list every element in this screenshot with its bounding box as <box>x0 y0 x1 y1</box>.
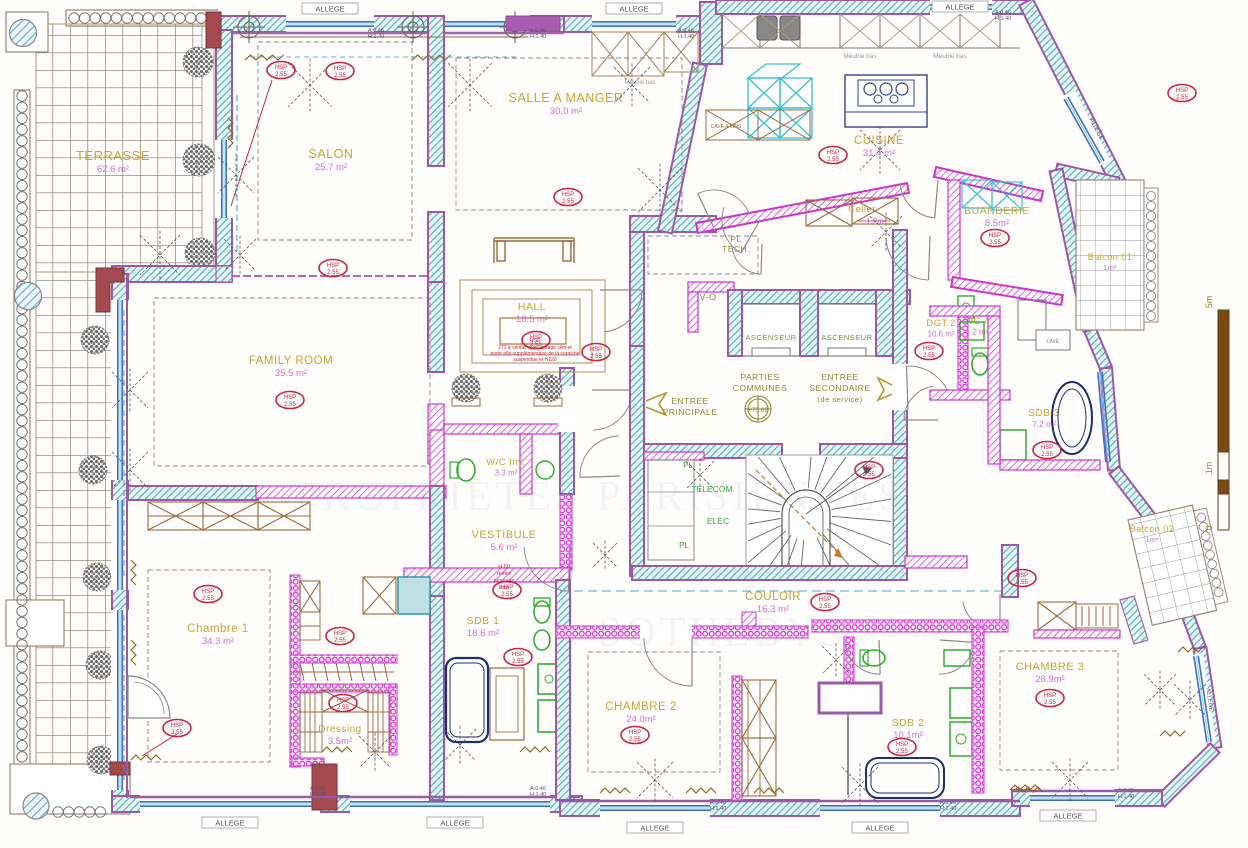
svg-text:2.55: 2.55 <box>827 157 839 163</box>
svg-text:SDB 3: SDB 3 <box>1028 408 1059 419</box>
svg-text:2.55: 2.55 <box>334 73 346 79</box>
svg-text:2.55: 2.55 <box>202 596 214 602</box>
svg-text:Balcon 02: Balcon 02 <box>1130 524 1175 534</box>
svg-text:HSP: HSP <box>590 347 602 353</box>
svg-text:HSP: HSP <box>501 585 513 591</box>
svg-text:35.5 m²: 35.5 m² <box>275 368 307 379</box>
svg-text:W/C Inv.: W/C Inv. <box>486 457 526 468</box>
svg-text:HSP: HSP <box>896 742 908 748</box>
svg-text:COULOIR: COULOIR <box>745 591 801 603</box>
svg-text:ENTREE: ENTREE <box>821 372 858 382</box>
svg-text:0: 0 <box>1204 525 1214 530</box>
svg-text:ASCENSEUR: ASCENSEUR <box>821 333 872 342</box>
svg-text:BUANDERIE: BUANDERIE <box>964 205 1030 217</box>
svg-text:CHAMBRE 3: CHAMBRE 3 <box>1016 661 1085 673</box>
svg-text:(de service): (de service) <box>817 395 862 404</box>
svg-text:H.60: H.60 <box>498 564 510 570</box>
svg-text:ALLEGE: ALLEGE <box>315 5 344 14</box>
svg-text:LAVE: LAVE <box>1047 339 1060 345</box>
svg-text:mètre: mètre <box>497 571 511 577</box>
svg-text:ENTREE: ENTREE <box>671 396 708 406</box>
svg-text:TERRASSE: TERRASSE <box>76 148 150 163</box>
svg-text:ALLEGE: ALLEGE <box>640 824 669 833</box>
svg-text:CUISINE: CUISINE <box>854 135 904 147</box>
svg-text:31.4 m²: 31.4 m² <box>863 148 895 159</box>
svg-text:A:0.46H:1.40: A:0.46H:1.40 <box>995 10 1011 22</box>
svg-text:ALLEGE: ALLEGE <box>619 5 648 14</box>
svg-text:2.55: 2.55 <box>896 749 908 755</box>
svg-text:2.55: 2.55 <box>590 354 602 360</box>
svg-text:HSP: HSP <box>530 335 542 341</box>
svg-text:2.55: 2.55 <box>512 659 524 665</box>
svg-text:HSP: HSP <box>1044 693 1056 699</box>
svg-text:SDB 1: SDB 1 <box>467 615 500 627</box>
svg-text:5.6 m²: 5.6 m² <box>491 542 518 553</box>
svg-text:2.55: 2.55 <box>530 342 542 348</box>
svg-text:3.5m²: 3.5m² <box>328 736 352 747</box>
svg-text:VESTIBULE: VESTIBULE <box>471 529 536 541</box>
svg-text:2.55: 2.55 <box>629 737 641 743</box>
svg-text:1m²: 1m² <box>1146 535 1159 544</box>
svg-text:25.7 m²: 25.7 m² <box>315 162 347 173</box>
svg-text:1.2 m²: 1.2 m² <box>966 328 989 337</box>
svg-text:5m: 5m <box>1204 296 1214 309</box>
svg-text:PL: PL <box>683 461 693 470</box>
svg-text:HSP: HSP <box>327 263 339 269</box>
svg-text:2.55: 2.55 <box>501 592 513 598</box>
svg-text:2.55: 2.55 <box>1041 452 1053 458</box>
svg-text:PROPRIETES PARISIENNES: PROPRIETES PARISIENNES <box>295 474 905 520</box>
svg-text:2.55: 2.55 <box>1176 95 1188 101</box>
svg-text:8.5m²: 8.5m² <box>985 218 1009 229</box>
svg-text:34.3 m²: 34.3 m² <box>202 636 234 647</box>
svg-text:SALLE A MANGER: SALLE A MANGER <box>509 91 624 105</box>
svg-text:A:0.46H:1.40: A:0.46H:1.40 <box>530 28 546 40</box>
svg-text:HSP: HSP <box>334 66 346 72</box>
svg-text:HSP: HSP <box>629 730 641 736</box>
svg-text:suspendue et H220: suspendue et H220 <box>513 357 557 363</box>
svg-text:A:0.46H:1.40: A:0.46H:1.40 <box>368 28 384 40</box>
svg-text:HSP: HSP <box>275 65 287 71</box>
svg-text:Dressing: Dressing <box>318 724 361 735</box>
svg-text:ALLEGE: ALLEGE <box>865 824 894 833</box>
svg-text:SOTHEBYS: SOTHEBYS <box>598 610 847 656</box>
svg-text:HSP: HSP <box>512 652 524 658</box>
svg-text:Chambre 1: Chambre 1 <box>187 623 248 635</box>
svg-text:A:0.46H:1.40: A:0.46H:1.40 <box>678 28 694 40</box>
svg-text:1m: 1m <box>1204 462 1214 475</box>
svg-text:Celier: Celier <box>848 204 876 215</box>
svg-text:HSP: HSP <box>863 465 875 471</box>
svg-text:COMMUNES: COMMUNES <box>733 383 788 393</box>
svg-text:HALL: HALL <box>518 301 546 313</box>
svg-text:HSP: HSP <box>337 698 349 704</box>
svg-text:30.0 m²: 30.0 m² <box>550 106 582 117</box>
svg-text:SDB 2: SDB 2 <box>892 717 925 729</box>
svg-text:HSP: HSP <box>923 346 935 352</box>
svg-text:HSP: HSP <box>284 395 296 401</box>
svg-text:10.6 m²: 10.6 m² <box>927 330 954 339</box>
svg-text:CHAMBRE 2: CHAMBRE 2 <box>605 701 677 713</box>
svg-text:24.0m²: 24.0m² <box>626 714 656 725</box>
svg-text:PARTIES: PARTIES <box>740 372 779 382</box>
svg-text:2.55: 2.55 <box>923 353 935 359</box>
svg-text:ALLEGE: ALLEGE <box>215 819 244 828</box>
svg-text:1m²: 1m² <box>1104 263 1117 272</box>
svg-text:2.55: 2.55 <box>327 270 339 276</box>
svg-text:+75.62: +75.62 <box>748 407 768 414</box>
svg-text:Meuble bas: Meuble bas <box>933 53 967 60</box>
svg-text:18.5 m²: 18.5 m² <box>516 314 548 325</box>
svg-text:DGT.2: DGT.2 <box>926 318 955 329</box>
svg-text:V-O: V-O <box>699 292 716 302</box>
svg-text:ALLEGE: ALLEGE <box>440 819 469 828</box>
svg-text:2.55: 2.55 <box>334 638 346 644</box>
svg-text:SALON: SALON <box>309 147 354 161</box>
svg-text:2.55: 2.55 <box>337 705 349 711</box>
svg-text:2.55: 2.55 <box>562 199 574 205</box>
svg-text:2.55: 2.55 <box>171 730 183 736</box>
svg-text:PL: PL <box>679 541 689 550</box>
svg-text:Balcon 01: Balcon 01 <box>1088 252 1133 262</box>
svg-text:HSP: HSP <box>562 192 574 198</box>
svg-text:62.6 m²: 62.6 m² <box>97 164 129 175</box>
svg-text:2.55: 2.55 <box>284 402 296 408</box>
svg-text:1.2m²: 1.2m² <box>866 217 887 226</box>
svg-text:HSP: HSP <box>1016 573 1028 579</box>
svg-text:28.9m²: 28.9m² <box>1035 674 1065 685</box>
svg-text:2.55: 2.55 <box>989 240 1001 246</box>
svg-text:HSP: HSP <box>989 233 1001 239</box>
svg-text:ALLEGE: ALLEGE <box>945 3 974 12</box>
svg-text:Meuble bas: Meuble bas <box>624 80 655 86</box>
svg-text:HSP: HSP <box>819 597 831 603</box>
svg-text:HSP: HSP <box>202 589 214 595</box>
svg-text:CAVE A VINS: CAVE A VINS <box>711 124 742 130</box>
svg-text:PL: PL <box>730 234 741 244</box>
svg-text:2.55: 2.55 <box>1016 580 1028 586</box>
svg-text:HSP: HSP <box>1176 88 1188 94</box>
svg-text:2.55: 2.55 <box>275 72 287 78</box>
svg-text:18.6 m²: 18.6 m² <box>467 628 499 639</box>
svg-text:HSP: HSP <box>334 631 346 637</box>
svg-text:Meuble bas: Meuble bas <box>843 53 877 60</box>
svg-text:ASCENSEUR: ASCENSEUR <box>745 333 796 342</box>
svg-text:ALLEGE: ALLEGE <box>1053 812 1082 821</box>
svg-text:PRINCIPALE: PRINCIPALE <box>663 407 718 417</box>
svg-text:HSP: HSP <box>827 150 839 156</box>
svg-text:SECONDAIRE: SECONDAIRE <box>809 383 870 393</box>
svg-text:HSP: HSP <box>171 723 183 729</box>
svg-text:FAMILY ROOM: FAMILY ROOM <box>249 355 333 367</box>
svg-text:2.55: 2.55 <box>1044 700 1056 706</box>
svg-text:HSP: HSP <box>1041 445 1053 451</box>
